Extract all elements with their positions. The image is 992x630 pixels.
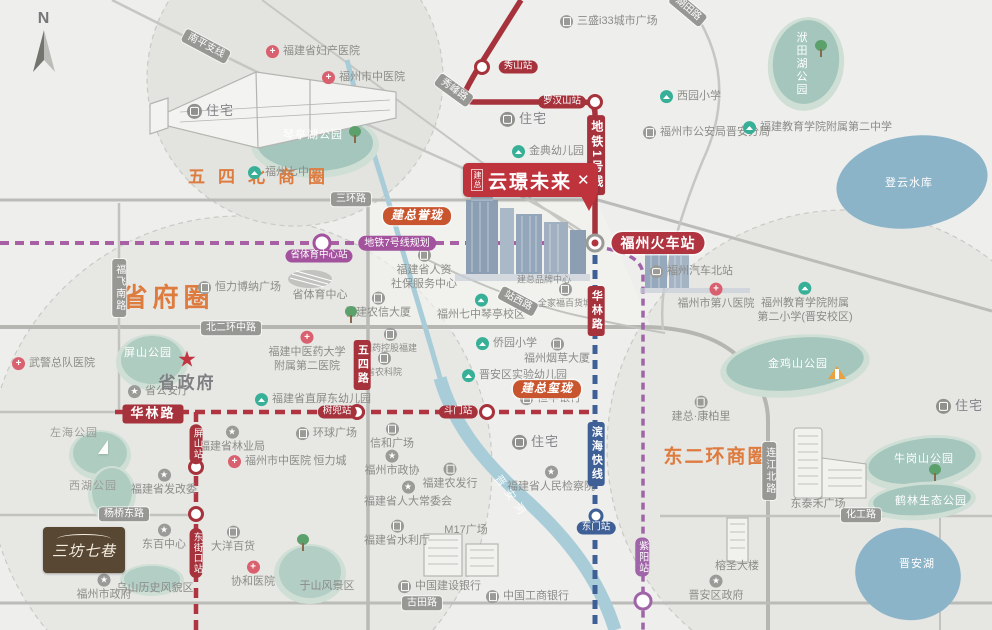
metro-station-label: 秀山站 — [499, 61, 538, 74]
building-icon — [383, 328, 396, 341]
project-badge-pointer — [581, 196, 597, 211]
bus-icon — [650, 266, 663, 279]
metro-station-dot — [586, 234, 605, 253]
star-icon — [128, 386, 141, 399]
map-poi: 福建省妇产医院 — [266, 45, 360, 59]
park-water-label: 金鸡山公园 — [768, 355, 828, 371]
map-poi: 国药控股福建 — [363, 328, 417, 354]
road-label: 北二环中路 — [201, 321, 261, 335]
metro-station-label: 屏山站 — [190, 424, 203, 464]
residence-icon — [187, 104, 202, 119]
sanfang-qixiang-logo: 三坊七巷 — [43, 527, 125, 573]
star-icon — [386, 450, 399, 463]
road-label: 华林路 — [122, 405, 183, 424]
location-map: N 五四北商圈 省府圈 东二环商圈 建总 云璟未来 ✕ 三坊七巷 南平支线秀峰路… — [0, 0, 992, 630]
metro-line-label: 滨海快线 — [588, 422, 605, 486]
tent-icon — [828, 366, 846, 379]
poi-label: 于山风景区 — [300, 580, 355, 594]
map-poi: 武警总队医院 — [12, 357, 95, 371]
map-poi: 住宅 — [500, 111, 547, 127]
star-icon — [226, 426, 239, 439]
poi-label: 大洋百货 — [211, 541, 255, 555]
map-poi: 建总品牌中心 — [517, 274, 571, 285]
sister-project-label: 建总誉珑 — [383, 207, 451, 225]
poi-label: 福州七中 — [265, 166, 309, 180]
building-icon — [372, 292, 385, 305]
hospital-icon — [710, 283, 723, 296]
school-icon — [743, 122, 756, 135]
poi-label: 住宅 — [955, 398, 983, 414]
building-icon — [694, 396, 707, 409]
building-icon — [198, 282, 211, 295]
map-poi: 福州教育学院附属 第二小学(晋安校区) — [757, 282, 852, 325]
building-icon — [391, 520, 404, 533]
map-poi: 福建省人资 社保服务中心 — [391, 249, 457, 292]
park-water-label: 琴亭湖公园 — [283, 126, 343, 142]
poi-label: 福州汽车北站 — [667, 265, 733, 279]
map-poi: 建总·康柏里 — [672, 396, 731, 425]
map-poi: 省公安厅 — [128, 385, 189, 399]
star-icon — [158, 469, 171, 482]
poi-label: 省农科院 — [366, 367, 402, 378]
tree-icon — [928, 464, 942, 481]
school-icon — [660, 91, 673, 104]
building-icon — [377, 352, 390, 365]
hospital-icon — [322, 72, 335, 85]
map-poi: 福州七中 — [248, 166, 309, 180]
school-icon — [248, 167, 261, 180]
metro-station-label: 东街口站 — [190, 528, 203, 578]
map-poi: 住宅 — [936, 398, 983, 414]
road-label: 杨桥东路 — [99, 507, 149, 521]
metro-station-dot — [188, 506, 204, 522]
map-poi: 福建省人民检察院 — [507, 466, 595, 495]
poi-label: 福建省林业局 — [199, 441, 265, 455]
star-icon — [545, 466, 558, 479]
hospital-icon — [228, 456, 241, 469]
poi-label: 恒力博纳广场 — [215, 281, 281, 295]
metro-station-label: 树兜站 — [318, 406, 357, 419]
map-overlay: N 五四北商圈 省府圈 东二环商圈 建总 云璟未来 ✕ 三坊七巷 南平支线秀峰路… — [0, 0, 992, 630]
map-poi: 中国建设银行 — [398, 580, 481, 594]
hospital-icon — [301, 331, 314, 344]
poi-label: 东百中心 — [142, 539, 186, 553]
poi-label: 中国工商银行 — [503, 590, 569, 604]
poi-label: 住宅 — [206, 103, 234, 119]
poi-label: 恒力城 — [314, 455, 347, 469]
building-icon — [227, 526, 240, 539]
sister-project-label: 建总玺珑 — [513, 380, 581, 398]
road-label: 连江北路 — [762, 442, 776, 500]
poi-label: 福州市政协 — [365, 465, 420, 479]
metro-station-dot — [587, 94, 603, 110]
poi-label: 福建省人资 社保服务中心 — [391, 264, 457, 292]
map-poi: 福州市中医院 — [228, 455, 311, 469]
compass: N — [24, 10, 64, 79]
project-name-label: 云璟未来 — [488, 167, 572, 194]
residence-icon — [512, 435, 527, 450]
road-label: 南平支线 — [181, 28, 231, 63]
poi-label: 福州教育学院附属 第二小学(晋安校区) — [757, 297, 852, 325]
map-poi: 榕圣大楼 — [715, 560, 759, 574]
poi-label: M17广场 — [444, 524, 487, 538]
building-icon — [386, 423, 399, 436]
tree-icon — [814, 40, 828, 57]
poi-label: 住宅 — [519, 111, 547, 127]
road-label: 秀峰路 — [434, 73, 474, 107]
hospital-icon — [12, 358, 25, 371]
poi-label: 福州烟草大厦 — [524, 353, 590, 367]
building-icon — [398, 581, 411, 594]
park-water-label: 鹤林生态公园 — [895, 492, 967, 508]
poi-label: 福州市中医院 — [339, 71, 405, 85]
map-poi: 福州市中医院 — [322, 71, 405, 85]
poi-label: 福州市第八医院 — [678, 298, 755, 312]
poi-label: 福建省水利厅 — [364, 535, 430, 549]
road-label: 三环路 — [331, 192, 371, 206]
star-icon — [98, 574, 111, 587]
metro-station-dot — [474, 59, 490, 75]
map-poi: 福州市政协 — [365, 450, 420, 479]
map-poi: 福建中医药大学 附属第二医院 — [269, 331, 346, 374]
poi-label: 福建省妇产医院 — [283, 45, 360, 59]
map-poi: 省农科院 — [366, 352, 402, 378]
map-poi: 全家福百货城 — [538, 283, 592, 309]
map-poi: 协和医院 — [231, 561, 275, 590]
map-poi: 住宅 — [512, 434, 559, 450]
map-poi: 恒力博纳广场 — [198, 281, 281, 295]
road-label: 湖田路 — [668, 0, 707, 27]
poi-label: 三盛i33城市广场 — [577, 15, 658, 29]
map-poi: 福建省水利厅 — [364, 520, 430, 549]
tree-icon — [344, 306, 358, 323]
school-icon — [462, 370, 475, 383]
poi-label: 住宅 — [531, 434, 559, 450]
star-icon — [402, 481, 415, 494]
map-poi: 乌山历史风貌区 — [117, 582, 194, 596]
map-poi: 福建省人大常委会 — [364, 481, 452, 510]
building-icon — [296, 428, 309, 441]
map-poi: 西园小学 — [660, 90, 721, 104]
poi-label: 中国建设银行 — [415, 580, 481, 594]
metro-line-label: 地铁7号线规划 — [358, 236, 436, 251]
poi-label: 全家福百货城 — [538, 298, 592, 309]
metro-station-dot — [479, 404, 495, 420]
map-poi: 大洋百货 — [211, 526, 255, 555]
building-icon — [643, 127, 656, 140]
poi-label: 福州七中琴亭校区 — [437, 309, 525, 323]
park-water-label: 洑田湖公园 — [793, 32, 809, 97]
district-title-dongerhuan: 东二环商圈 — [663, 442, 768, 469]
park-label: 西湖公园 — [69, 477, 117, 493]
poi-label: 环球广场 — [313, 427, 357, 441]
poi-label: 福州市中医院 — [245, 455, 311, 469]
project-brand-label: 建总 — [471, 169, 483, 191]
map-poi: 东泰禾广场 — [791, 498, 846, 512]
hospital-icon — [247, 561, 260, 574]
sanfang-qixiang-label: 三坊七巷 — [52, 540, 116, 561]
map-poi: 福州市第八医院 — [678, 283, 755, 312]
park-water-label: 牛岗山公园 — [894, 450, 954, 466]
school-icon — [476, 338, 489, 351]
road-label: 福飞南路 — [112, 259, 126, 317]
poi-label: 福建教育学院附属第二中学 — [760, 121, 892, 135]
building-icon — [551, 338, 564, 351]
school-icon — [512, 146, 525, 159]
map-poi: 中国工商银行 — [486, 590, 569, 604]
metro-station-label: 罗汉山站 — [538, 96, 586, 109]
poi-label: 建总品牌中心 — [517, 274, 571, 285]
map-poi: 东百中心 — [142, 524, 186, 553]
residence-icon — [936, 399, 951, 414]
poi-label: 福建中医药大学 附属第二医院 — [269, 346, 346, 374]
building-icon — [418, 249, 431, 262]
poi-label: 东泰禾广场 — [791, 498, 846, 512]
poi-label: 协和医院 — [231, 576, 275, 590]
tree-icon — [296, 534, 310, 551]
road-label: 化工路 — [841, 508, 881, 522]
road-label: 古田路 — [402, 596, 442, 610]
map-poi: 省体育中心 — [293, 289, 348, 303]
poi-label: 福建省人大常委会 — [364, 496, 452, 510]
project-logo-mark: ✕ — [577, 171, 590, 189]
residence-icon — [500, 112, 515, 127]
metro-station-label: 斗门站 — [439, 406, 478, 419]
poi-label: 西园小学 — [677, 90, 721, 104]
school-icon — [255, 394, 268, 407]
park-water-label: 登云水库 — [885, 174, 933, 190]
map-poi: 于山风景区 — [300, 580, 355, 594]
poi-label: 乌山历史风貌区 — [117, 582, 194, 596]
metro-station-label: 紫阳站 — [635, 538, 649, 577]
map-poi: 福州汽车北站 — [650, 265, 733, 279]
building-icon — [486, 591, 499, 604]
map-poi: 环球广场 — [296, 427, 357, 441]
railway-station-label: 福州火车站 — [612, 232, 705, 254]
sail-icon — [98, 440, 108, 454]
map-poi: 恒力城 — [314, 455, 347, 469]
road-label: 华林路 — [588, 286, 605, 336]
poi-label: 福建省人民检察院 — [507, 481, 595, 495]
building-icon — [560, 16, 573, 29]
compass-arrow-icon — [28, 28, 60, 74]
map-poi: 晋安区政府 — [689, 575, 744, 604]
star-icon — [158, 524, 171, 537]
poi-label: 金典幼儿园 — [529, 145, 584, 159]
map-poi: 信和广场 — [370, 423, 414, 452]
building-icon — [444, 463, 457, 476]
map-poi: 福建省林业局 — [199, 426, 265, 455]
map-poi: 三盛i33城市广场 — [560, 15, 658, 29]
metro-station-label: 东门站 — [577, 522, 616, 535]
school-icon — [798, 282, 811, 295]
park-water-label: 屏山公园 — [124, 344, 172, 360]
compass-n-label: N — [24, 10, 64, 28]
school-icon — [475, 294, 488, 307]
poi-label: 武警总队医院 — [29, 357, 95, 371]
red-star-icon — [176, 348, 198, 370]
road-label: 五四路 — [354, 340, 371, 390]
map-poi: 金典幼儿园 — [512, 145, 584, 159]
poi-label: 福建省发改委 — [131, 484, 197, 498]
star-icon — [710, 575, 723, 588]
poi-label: 晋安区政府 — [689, 590, 744, 604]
metro-station-dot — [634, 592, 653, 611]
park-water-label: 晋安湖 — [899, 555, 935, 571]
poi-label: 榕圣大楼 — [715, 560, 759, 574]
map-poi: 住宅 — [187, 103, 234, 119]
map-poi: 福建教育学院附属第二中学 — [743, 121, 892, 135]
poi-label: 建总·康柏里 — [672, 411, 731, 425]
map-poi: 福州烟草大厦 — [524, 338, 590, 367]
hospital-icon — [266, 46, 279, 59]
map-poi: M17广场 — [444, 524, 487, 538]
project-badge: 建总 云璟未来 ✕ — [463, 163, 598, 197]
map-poi: 福建省发改委 — [131, 469, 197, 498]
park-label: 左海公园 — [50, 424, 98, 440]
tree-icon — [348, 126, 362, 143]
poi-label: 省公安厅 — [145, 385, 189, 399]
poi-label: 省体育中心 — [293, 289, 348, 303]
metro-station-label: 省体育中心站 — [285, 250, 352, 263]
